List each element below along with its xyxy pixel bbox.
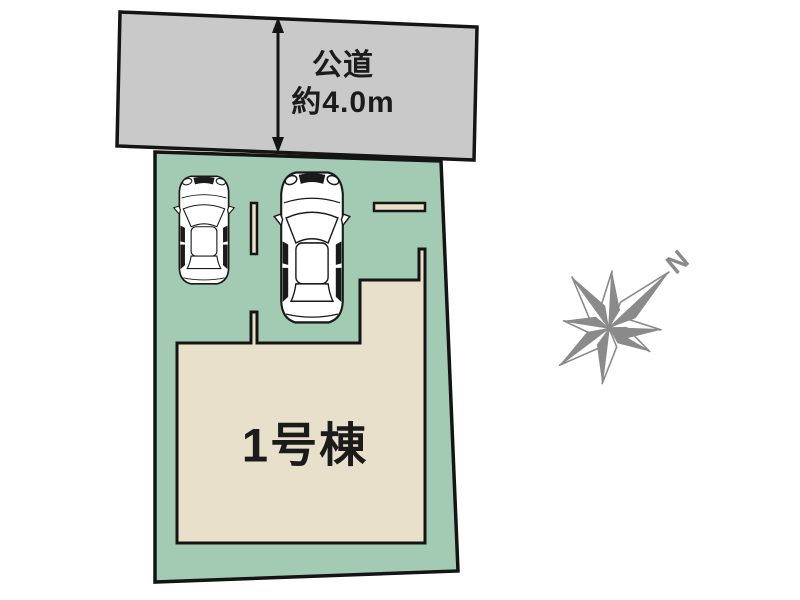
site-plan-drawing (0, 0, 800, 600)
road-label: 公道 約4.0m (291, 47, 394, 121)
road-label-line2: 約4.0m (291, 84, 394, 121)
sedan-car-top-view-icon (274, 173, 350, 323)
building-label: 1号棟 (242, 407, 368, 476)
compass-rose-icon (560, 271, 669, 384)
parking-divider-vertical (251, 203, 257, 254)
road-label-line1: 公道 (291, 47, 394, 84)
compact-car-top-view-icon (174, 176, 234, 284)
parking-divider-horizontal (374, 203, 425, 211)
site-plan-canvas: 公道 約4.0m 1号棟 N (0, 0, 800, 600)
